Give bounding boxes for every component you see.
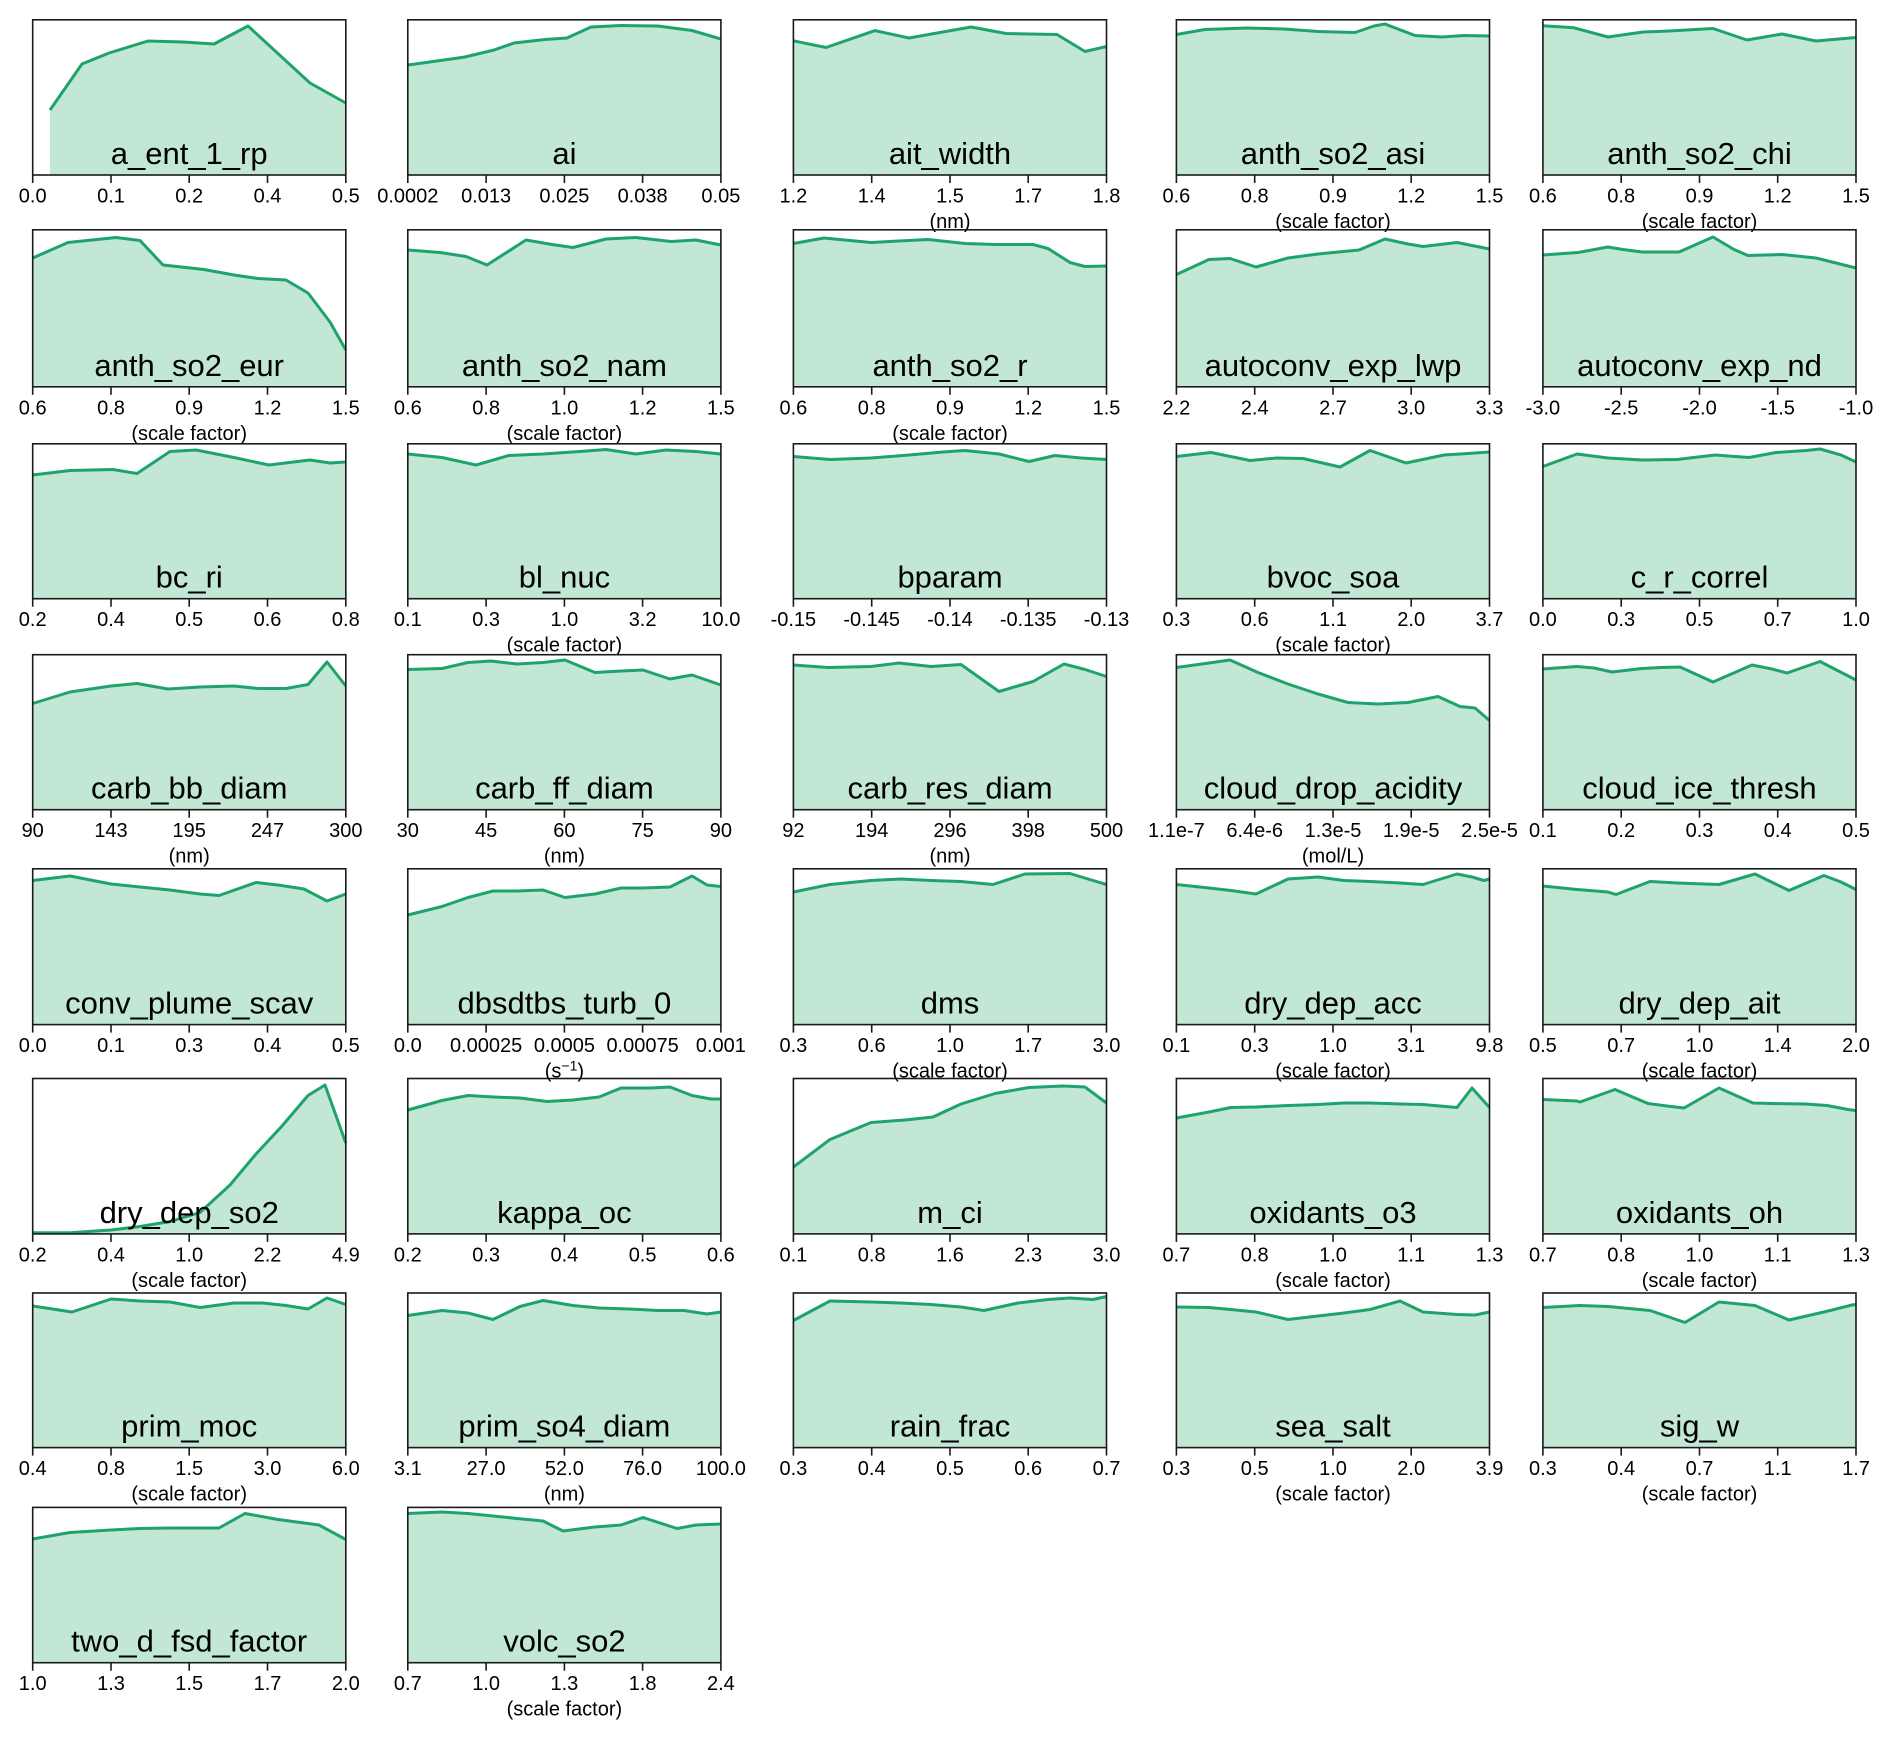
svg-text:m_ci: m_ci <box>917 1195 982 1230</box>
svg-text:(nm): (nm) <box>544 846 585 868</box>
svg-text:0.5: 0.5 <box>332 186 360 208</box>
svg-text:0.2: 0.2 <box>175 186 203 208</box>
svg-text:(scale factor): (scale factor) <box>131 1484 247 1506</box>
svg-text:(nm): (nm) <box>169 846 210 868</box>
svg-text:4.9: 4.9 <box>332 1244 360 1266</box>
svg-text:(scale factor): (scale factor) <box>131 423 247 445</box>
svg-text:0.4: 0.4 <box>19 1458 47 1480</box>
svg-text:0.8: 0.8 <box>1241 1244 1269 1266</box>
svg-text:75: 75 <box>631 820 653 842</box>
svg-text:(nm): (nm) <box>929 846 970 868</box>
svg-text:0.7: 0.7 <box>1529 1244 1557 1266</box>
svg-text:1.7: 1.7 <box>1014 1035 1042 1057</box>
svg-text:-0.13: -0.13 <box>1084 609 1130 631</box>
svg-text:6.4e-6: 6.4e-6 <box>1226 820 1283 842</box>
svg-text:c_r_correl: c_r_correl <box>1631 560 1769 595</box>
svg-text:90: 90 <box>22 820 44 842</box>
svg-text:0.3: 0.3 <box>1529 1458 1557 1480</box>
svg-text:3.0: 3.0 <box>1397 397 1425 419</box>
svg-text:0.4: 0.4 <box>1607 1458 1635 1480</box>
svg-text:195: 195 <box>173 820 206 842</box>
svg-text:0.6: 0.6 <box>1529 186 1557 208</box>
svg-text:1.8: 1.8 <box>1093 186 1121 208</box>
svg-text:1.5: 1.5 <box>175 1673 203 1695</box>
svg-text:2.7: 2.7 <box>1319 397 1347 419</box>
svg-text:0.1: 0.1 <box>779 1244 807 1266</box>
svg-text:1.2: 1.2 <box>1014 397 1042 419</box>
svg-text:3.0: 3.0 <box>1093 1035 1121 1057</box>
svg-text:anth_so2_nam: anth_so2_nam <box>462 348 667 383</box>
svg-text:0.6: 0.6 <box>394 397 422 419</box>
svg-text:45: 45 <box>475 820 497 842</box>
svg-text:0.8: 0.8 <box>97 1458 125 1480</box>
svg-text:0.6: 0.6 <box>707 1244 735 1266</box>
svg-text:0.013: 0.013 <box>461 186 511 208</box>
svg-text:1.5: 1.5 <box>1093 397 1121 419</box>
svg-text:carb_res_diam: carb_res_diam <box>847 771 1052 806</box>
svg-text:1.5: 1.5 <box>936 186 964 208</box>
svg-text:3.9: 3.9 <box>1476 1458 1504 1480</box>
svg-text:0.2: 0.2 <box>394 1244 422 1266</box>
svg-text:1.2: 1.2 <box>1397 186 1425 208</box>
svg-text:dry_dep_so2: dry_dep_so2 <box>100 1195 279 1230</box>
svg-text:1.4: 1.4 <box>1764 1035 1792 1057</box>
svg-text:(scale factor): (scale factor) <box>1642 1484 1758 1506</box>
svg-text:0.3: 0.3 <box>175 1035 203 1057</box>
svg-text:-2.0: -2.0 <box>1682 397 1716 419</box>
svg-text:sea_salt: sea_salt <box>1275 1409 1391 1444</box>
svg-text:0.00075: 0.00075 <box>606 1035 678 1057</box>
svg-text:a_ent_1_rp: a_ent_1_rp <box>111 136 268 171</box>
svg-text:3.2: 3.2 <box>629 609 657 631</box>
svg-text:100.0: 100.0 <box>696 1458 746 1480</box>
svg-text:0.7: 0.7 <box>1764 609 1792 631</box>
svg-text:two_d_fsd_factor: two_d_fsd_factor <box>71 1624 307 1659</box>
svg-text:-1.5: -1.5 <box>1760 397 1794 419</box>
svg-text:1.0: 1.0 <box>19 1673 47 1695</box>
svg-text:1.0: 1.0 <box>1319 1458 1347 1480</box>
svg-text:0.6: 0.6 <box>1162 186 1190 208</box>
svg-text:0.9: 0.9 <box>936 397 964 419</box>
svg-text:(scale factor): (scale factor) <box>1275 635 1391 657</box>
svg-text:0.5: 0.5 <box>629 1244 657 1266</box>
svg-text:0.5: 0.5 <box>175 609 203 631</box>
svg-text:296: 296 <box>933 820 966 842</box>
svg-text:2.2: 2.2 <box>1162 397 1190 419</box>
svg-text:27.0: 27.0 <box>467 1458 506 1480</box>
svg-text:3.1: 3.1 <box>394 1458 422 1480</box>
svg-text:0.4: 0.4 <box>1764 820 1792 842</box>
svg-text:1.0: 1.0 <box>175 1244 203 1266</box>
svg-text:1.0: 1.0 <box>472 1673 500 1695</box>
svg-text:2.0: 2.0 <box>1397 609 1425 631</box>
svg-text:0.8: 0.8 <box>332 609 360 631</box>
svg-text:0.7: 0.7 <box>394 1673 422 1695</box>
svg-text:0.3: 0.3 <box>1162 1458 1190 1480</box>
svg-text:0.1: 0.1 <box>97 186 125 208</box>
svg-text:1.5: 1.5 <box>175 1458 203 1480</box>
svg-text:3.3: 3.3 <box>1476 397 1504 419</box>
svg-text:0.1: 0.1 <box>394 609 422 631</box>
svg-text:0.025: 0.025 <box>539 186 589 208</box>
svg-text:0.2: 0.2 <box>1607 820 1635 842</box>
svg-text:0.9: 0.9 <box>175 397 203 419</box>
svg-text:0.8: 0.8 <box>1607 186 1635 208</box>
svg-text:143: 143 <box>94 820 127 842</box>
svg-text:1.0: 1.0 <box>1686 1035 1714 1057</box>
svg-text:ai: ai <box>552 136 576 171</box>
svg-text:1.3e-5: 1.3e-5 <box>1305 820 1362 842</box>
svg-text:0.5: 0.5 <box>936 1458 964 1480</box>
svg-text:-2.5: -2.5 <box>1604 397 1638 419</box>
svg-text:(scale factor): (scale factor) <box>131 1270 247 1292</box>
svg-text:anth_so2_asi: anth_so2_asi <box>1241 136 1425 171</box>
svg-text:bl_nuc: bl_nuc <box>519 560 610 595</box>
svg-text:0.8: 0.8 <box>858 1244 886 1266</box>
svg-text:0.8: 0.8 <box>1607 1244 1635 1266</box>
svg-text:300: 300 <box>329 820 362 842</box>
svg-text:0.4: 0.4 <box>97 1244 125 1266</box>
svg-text:3.7: 3.7 <box>1476 609 1504 631</box>
svg-text:0.1: 0.1 <box>1529 820 1557 842</box>
svg-text:0.5: 0.5 <box>1842 820 1870 842</box>
svg-text:0.8: 0.8 <box>472 397 500 419</box>
svg-text:0.5: 0.5 <box>332 1035 360 1057</box>
svg-text:0.7: 0.7 <box>1686 1458 1714 1480</box>
svg-text:0.6: 0.6 <box>858 1035 886 1057</box>
svg-text:194: 194 <box>855 820 888 842</box>
svg-text:ait_width: ait_width <box>889 136 1011 171</box>
svg-text:dry_dep_ait: dry_dep_ait <box>1618 986 1780 1021</box>
svg-text:1.5: 1.5 <box>332 397 360 419</box>
svg-text:dbsdtbs_turb_0: dbsdtbs_turb_0 <box>458 986 672 1021</box>
svg-text:2.0: 2.0 <box>1397 1458 1425 1480</box>
svg-text:1.0: 1.0 <box>550 397 578 419</box>
svg-text:52.0: 52.0 <box>545 1458 584 1480</box>
svg-text:0.4: 0.4 <box>254 1035 282 1057</box>
svg-text:398: 398 <box>1012 820 1045 842</box>
svg-text:oxidants_o3: oxidants_o3 <box>1249 1195 1416 1230</box>
svg-text:247: 247 <box>251 820 284 842</box>
svg-text:1.7: 1.7 <box>254 1673 282 1695</box>
svg-text:anth_so2_eur: anth_so2_eur <box>94 348 284 383</box>
svg-text:autoconv_exp_nd: autoconv_exp_nd <box>1577 348 1822 383</box>
svg-text:-0.145: -0.145 <box>843 609 900 631</box>
svg-text:2.0: 2.0 <box>332 1673 360 1695</box>
svg-text:0.7: 0.7 <box>1162 1244 1190 1266</box>
svg-text:0.1: 0.1 <box>97 1035 125 1057</box>
svg-text:0.6: 0.6 <box>19 397 47 419</box>
svg-text:0.9: 0.9 <box>1686 186 1714 208</box>
svg-text:carb_ff_diam: carb_ff_diam <box>475 771 654 806</box>
svg-text:1.3: 1.3 <box>97 1673 125 1695</box>
svg-text:1.5: 1.5 <box>1476 186 1504 208</box>
svg-text:bc_ri: bc_ri <box>156 560 223 595</box>
svg-text:0.8: 0.8 <box>97 397 125 419</box>
svg-text:0.8: 0.8 <box>1241 186 1269 208</box>
svg-text:1.2: 1.2 <box>254 397 282 419</box>
svg-text:0.8: 0.8 <box>858 397 886 419</box>
svg-text:3.0: 3.0 <box>1093 1244 1121 1266</box>
svg-text:-0.14: -0.14 <box>927 609 973 631</box>
svg-text:oxidants_oh: oxidants_oh <box>1616 1195 1783 1230</box>
svg-text:2.4: 2.4 <box>1241 397 1269 419</box>
svg-text:1.1: 1.1 <box>1764 1244 1792 1266</box>
svg-text:bparam: bparam <box>897 560 1002 595</box>
svg-text:0.3: 0.3 <box>1607 609 1635 631</box>
svg-text:1.9e-5: 1.9e-5 <box>1383 820 1440 842</box>
svg-text:1.8: 1.8 <box>629 1673 657 1695</box>
svg-text:0.3: 0.3 <box>779 1035 807 1057</box>
svg-text:0.0: 0.0 <box>394 1035 422 1057</box>
svg-text:0.3: 0.3 <box>779 1458 807 1480</box>
svg-text:1.3: 1.3 <box>1842 1244 1870 1266</box>
svg-text:1.0: 1.0 <box>1319 1244 1347 1266</box>
svg-text:0.7: 0.7 <box>1607 1035 1635 1057</box>
svg-text:1.5: 1.5 <box>707 397 735 419</box>
svg-text:2.3: 2.3 <box>1014 1244 1042 1266</box>
svg-text:1.0: 1.0 <box>1319 1035 1347 1057</box>
svg-text:10.0: 10.0 <box>701 609 740 631</box>
svg-text:0.3: 0.3 <box>1686 820 1714 842</box>
svg-text:76.0: 76.0 <box>623 1458 662 1480</box>
svg-text:(scale factor): (scale factor) <box>1642 1270 1758 1292</box>
svg-text:1.2: 1.2 <box>779 186 807 208</box>
svg-text:(scale factor): (scale factor) <box>507 635 623 657</box>
svg-text:90: 90 <box>710 820 732 842</box>
svg-text:1.0: 1.0 <box>550 609 578 631</box>
svg-text:0.0: 0.0 <box>19 1035 47 1057</box>
svg-text:prim_so4_diam: prim_so4_diam <box>458 1409 670 1444</box>
svg-text:2.4: 2.4 <box>707 1673 735 1695</box>
svg-text:3.1: 3.1 <box>1397 1035 1425 1057</box>
svg-text:kappa_oc: kappa_oc <box>497 1195 631 1230</box>
svg-text:500: 500 <box>1090 820 1123 842</box>
svg-text:(scale factor): (scale factor) <box>507 423 623 445</box>
svg-text:0.2: 0.2 <box>19 1244 47 1266</box>
svg-text:0.6: 0.6 <box>254 609 282 631</box>
svg-text:0.9: 0.9 <box>1319 186 1347 208</box>
svg-text:1.0: 1.0 <box>1842 609 1870 631</box>
svg-text:0.3: 0.3 <box>472 609 500 631</box>
svg-text:1.6: 1.6 <box>936 1244 964 1266</box>
svg-text:2.5e-5: 2.5e-5 <box>1461 820 1518 842</box>
svg-text:1.1: 1.1 <box>1764 1458 1792 1480</box>
svg-text:1.0: 1.0 <box>936 1035 964 1057</box>
svg-text:1.1: 1.1 <box>1319 609 1347 631</box>
svg-text:prim_moc: prim_moc <box>121 1409 257 1444</box>
svg-text:9.8: 9.8 <box>1476 1035 1504 1057</box>
svg-text:sig_w: sig_w <box>1660 1409 1740 1444</box>
svg-text:rain_frac: rain_frac <box>890 1409 1011 1444</box>
svg-text:0.6: 0.6 <box>779 397 807 419</box>
svg-text:0.4: 0.4 <box>254 186 282 208</box>
svg-text:1.5: 1.5 <box>1842 186 1870 208</box>
svg-text:-0.15: -0.15 <box>771 609 817 631</box>
svg-text:30: 30 <box>397 820 419 842</box>
svg-text:-3.0: -3.0 <box>1526 397 1560 419</box>
svg-text:0.2: 0.2 <box>19 609 47 631</box>
svg-text:1.7: 1.7 <box>1842 1458 1870 1480</box>
svg-text:0.5: 0.5 <box>1241 1458 1269 1480</box>
svg-text:0.038: 0.038 <box>618 186 668 208</box>
svg-text:1.2: 1.2 <box>1764 186 1792 208</box>
svg-text:0.7: 0.7 <box>1093 1458 1121 1480</box>
svg-text:1.3: 1.3 <box>1476 1244 1504 1266</box>
svg-text:1.3: 1.3 <box>550 1673 578 1695</box>
svg-text:92: 92 <box>782 820 804 842</box>
svg-text:-0.135: -0.135 <box>1000 609 1057 631</box>
svg-text:0.5: 0.5 <box>1686 609 1714 631</box>
svg-text:-1.0: -1.0 <box>1839 397 1873 419</box>
svg-text:0.0005: 0.0005 <box>534 1035 595 1057</box>
svg-text:0.3: 0.3 <box>1241 1035 1269 1057</box>
svg-text:0.3: 0.3 <box>1162 609 1190 631</box>
svg-text:0.4: 0.4 <box>550 1244 578 1266</box>
svg-text:0.0: 0.0 <box>1529 609 1557 631</box>
svg-text:0.00025: 0.00025 <box>450 1035 522 1057</box>
svg-text:(nm): (nm) <box>544 1484 585 1506</box>
svg-text:0.4: 0.4 <box>97 609 125 631</box>
svg-text:1.1: 1.1 <box>1397 1244 1425 1266</box>
svg-text:volc_so2: volc_so2 <box>503 1624 625 1659</box>
svg-text:1.1e-7: 1.1e-7 <box>1148 820 1205 842</box>
svg-text:0.4: 0.4 <box>858 1458 886 1480</box>
svg-text:0.1: 0.1 <box>1162 1035 1190 1057</box>
svg-text:(scale factor): (scale factor) <box>1275 1484 1391 1506</box>
svg-text:dms: dms <box>921 986 980 1021</box>
svg-text:conv_plume_scav: conv_plume_scav <box>65 986 314 1021</box>
svg-text:(scale factor): (scale factor) <box>507 1699 623 1721</box>
svg-text:3.0: 3.0 <box>254 1458 282 1480</box>
svg-text:2.2: 2.2 <box>254 1244 282 1266</box>
svg-text:0.5: 0.5 <box>1529 1035 1557 1057</box>
svg-text:autoconv_exp_lwp: autoconv_exp_lwp <box>1205 348 1462 383</box>
svg-text:1.0: 1.0 <box>1686 1244 1714 1266</box>
svg-text:cloud_ice_thresh: cloud_ice_thresh <box>1582 771 1816 806</box>
svg-text:carb_bb_diam: carb_bb_diam <box>91 771 287 806</box>
svg-text:60: 60 <box>553 820 575 842</box>
svg-text:0.6: 0.6 <box>1014 1458 1042 1480</box>
svg-text:0.001: 0.001 <box>696 1035 746 1057</box>
svg-text:(scale factor): (scale factor) <box>1275 1270 1391 1292</box>
svg-text:1.7: 1.7 <box>1014 186 1042 208</box>
svg-text:2.0: 2.0 <box>1842 1035 1870 1057</box>
svg-text:1.4: 1.4 <box>858 186 886 208</box>
svg-text:(mol/L): (mol/L) <box>1302 846 1364 868</box>
svg-text:0.0: 0.0 <box>19 186 47 208</box>
svg-text:1.2: 1.2 <box>629 397 657 419</box>
svg-text:anth_so2_r: anth_so2_r <box>872 348 1027 383</box>
svg-text:cloud_drop_acidity: cloud_drop_acidity <box>1204 771 1463 806</box>
svg-text:(scale factor): (scale factor) <box>892 423 1008 445</box>
svg-text:0.6: 0.6 <box>1241 609 1269 631</box>
svg-text:0.3: 0.3 <box>472 1244 500 1266</box>
svg-text:anth_so2_chi: anth_so2_chi <box>1607 136 1791 171</box>
svg-text:0.05: 0.05 <box>701 186 740 208</box>
svg-text:dry_dep_acc: dry_dep_acc <box>1244 986 1422 1021</box>
svg-text:6.0: 6.0 <box>332 1458 360 1480</box>
svg-text:0.0002: 0.0002 <box>377 186 438 208</box>
svg-text:bvoc_soa: bvoc_soa <box>1267 560 1400 595</box>
